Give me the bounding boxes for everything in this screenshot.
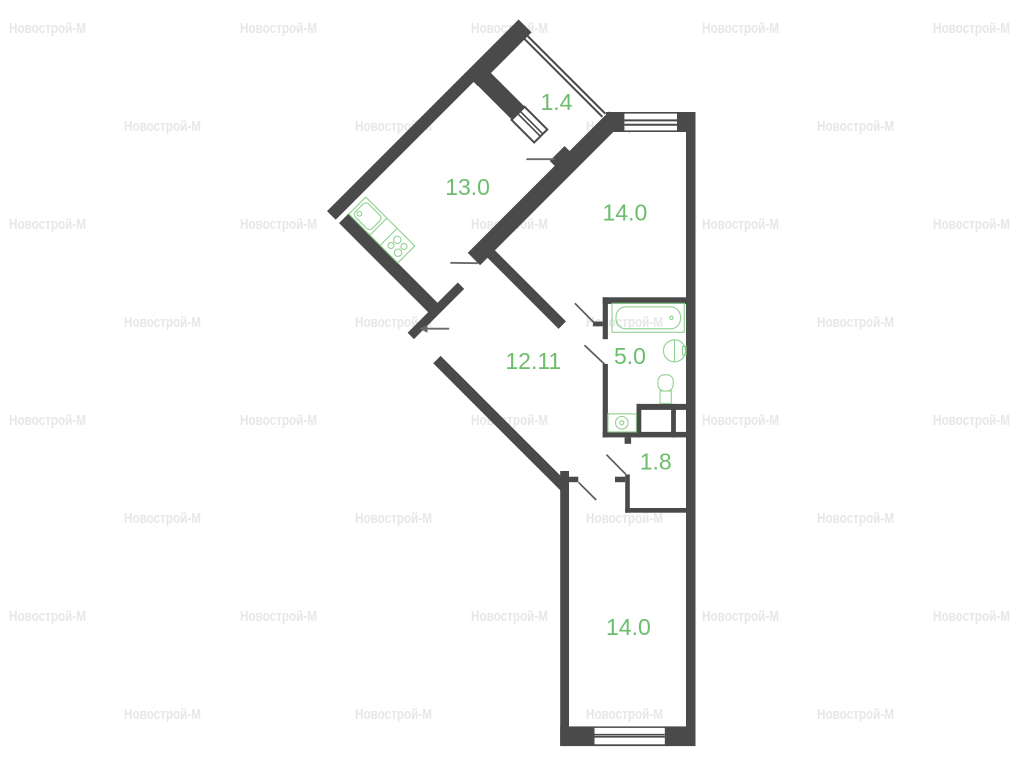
svg-text:Новострой-М: Новострой-М bbox=[702, 20, 779, 37]
svg-text:Новострой-М: Новострой-М bbox=[702, 412, 779, 429]
svg-text:Новострой-М: Новострой-М bbox=[586, 706, 663, 723]
svg-text:Новострой-М: Новострой-М bbox=[933, 216, 1010, 233]
svg-text:Новострой-М: Новострой-М bbox=[240, 608, 317, 625]
svg-text:Новострой-М: Новострой-М bbox=[240, 20, 317, 37]
svg-text:Новострой-М: Новострой-М bbox=[124, 314, 201, 331]
svg-text:Новострой-М: Новострой-М bbox=[933, 412, 1010, 429]
svg-text:Новострой-М: Новострой-М bbox=[240, 412, 317, 429]
svg-text:Новострой-М: Новострой-М bbox=[355, 510, 432, 527]
svg-text:5.0: 5.0 bbox=[614, 343, 646, 369]
svg-text:Новострой-М: Новострой-М bbox=[124, 118, 201, 135]
svg-text:Новострой-М: Новострой-М bbox=[817, 118, 894, 135]
svg-text:1.8: 1.8 bbox=[640, 449, 672, 475]
svg-text:Новострой-М: Новострой-М bbox=[471, 608, 548, 625]
svg-text:Новострой-М: Новострой-М bbox=[9, 216, 86, 233]
svg-text:14.0: 14.0 bbox=[606, 614, 651, 640]
svg-text:Новострой-М: Новострой-М bbox=[124, 706, 201, 723]
svg-text:Новострой-М: Новострой-М bbox=[9, 608, 86, 625]
svg-text:Новострой-М: Новострой-М bbox=[933, 20, 1010, 37]
svg-text:Новострой-М: Новострой-М bbox=[817, 510, 894, 527]
svg-text:13.0: 13.0 bbox=[445, 174, 490, 200]
svg-text:Новострой-М: Новострой-М bbox=[9, 412, 86, 429]
svg-text:12.11: 12.11 bbox=[505, 348, 561, 374]
svg-text:1.4: 1.4 bbox=[541, 89, 573, 115]
svg-text:Новострой-М: Новострой-М bbox=[702, 608, 779, 625]
svg-text:Новострой-М: Новострой-М bbox=[240, 216, 317, 233]
svg-text:Новострой-М: Новострой-М bbox=[817, 706, 894, 723]
svg-text:Новострой-М: Новострой-М bbox=[933, 608, 1010, 625]
svg-text:Новострой-М: Новострой-М bbox=[9, 20, 86, 37]
svg-text:Новострой-М: Новострой-М bbox=[702, 216, 779, 233]
svg-text:Новострой-М: Новострой-М bbox=[355, 706, 432, 723]
svg-text:Новострой-М: Новострой-М bbox=[124, 510, 201, 527]
svg-text:14.0: 14.0 bbox=[603, 200, 648, 226]
svg-text:Новострой-М: Новострой-М bbox=[817, 314, 894, 331]
